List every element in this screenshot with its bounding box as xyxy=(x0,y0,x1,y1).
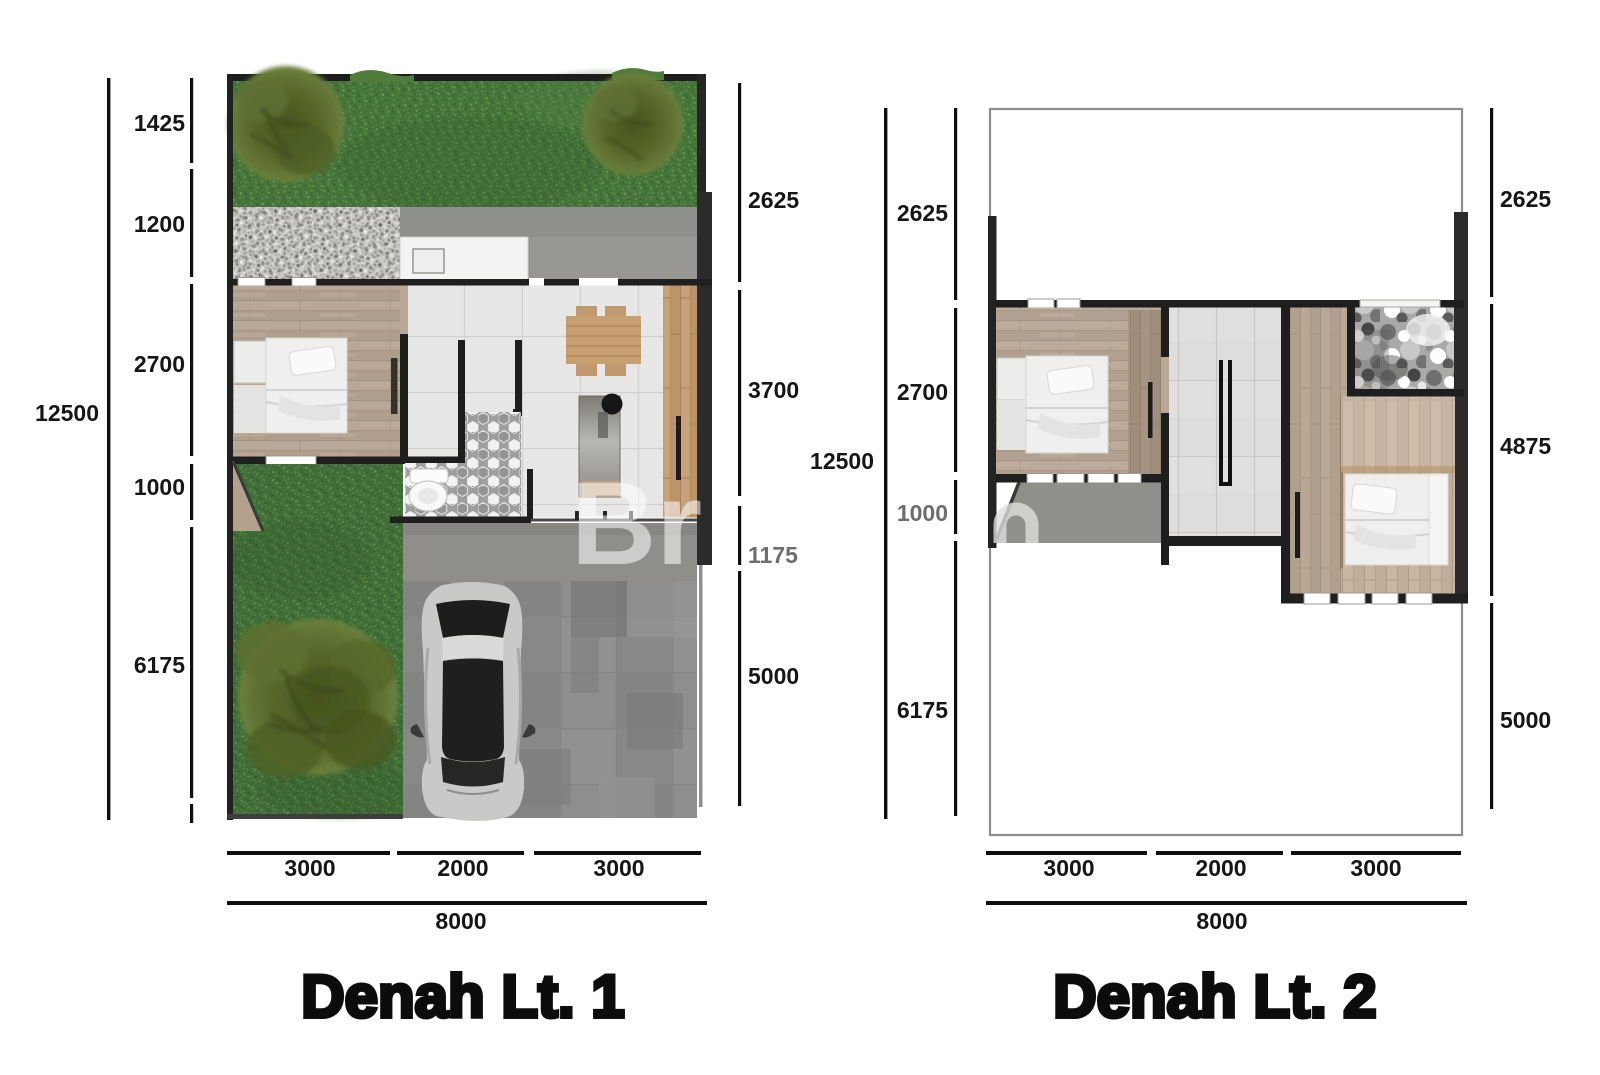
svg-text:2625: 2625 xyxy=(1500,186,1551,212)
svg-text:Denah Lt. 2: Denah Lt. 2 xyxy=(1053,963,1376,1030)
svg-text:12500: 12500 xyxy=(35,400,99,426)
svg-text:1000: 1000 xyxy=(897,500,948,526)
svg-text:1000: 1000 xyxy=(134,474,185,500)
svg-text:2625: 2625 xyxy=(897,200,948,226)
svg-text:6175: 6175 xyxy=(897,697,948,723)
svg-text:2000: 2000 xyxy=(437,855,488,881)
svg-text:3000: 3000 xyxy=(1043,855,1094,881)
svg-text:1425: 1425 xyxy=(134,110,185,136)
svg-text:2625: 2625 xyxy=(748,187,799,213)
svg-text:5000: 5000 xyxy=(748,663,799,689)
svg-text:5000: 5000 xyxy=(1500,707,1551,733)
svg-text:12500: 12500 xyxy=(810,448,874,474)
svg-text:4875: 4875 xyxy=(1500,433,1551,459)
svg-text:Denah Lt. 1: Denah Lt. 1 xyxy=(301,963,624,1030)
svg-text:3000: 3000 xyxy=(1350,855,1401,881)
svg-text:1175: 1175 xyxy=(748,542,798,568)
svg-text:Br: Br xyxy=(571,458,702,590)
svg-text:2700: 2700 xyxy=(897,379,948,405)
svg-text:2000: 2000 xyxy=(1195,855,1246,881)
svg-text:8000: 8000 xyxy=(1196,908,1247,934)
svg-text:2700: 2700 xyxy=(134,351,185,377)
svg-text:3000: 3000 xyxy=(284,855,335,881)
svg-text:3700: 3700 xyxy=(748,377,799,403)
svg-text:8000: 8000 xyxy=(435,908,486,934)
svg-text:3000: 3000 xyxy=(593,855,644,881)
svg-text:6175: 6175 xyxy=(134,652,185,678)
svg-text:1200: 1200 xyxy=(134,211,185,237)
